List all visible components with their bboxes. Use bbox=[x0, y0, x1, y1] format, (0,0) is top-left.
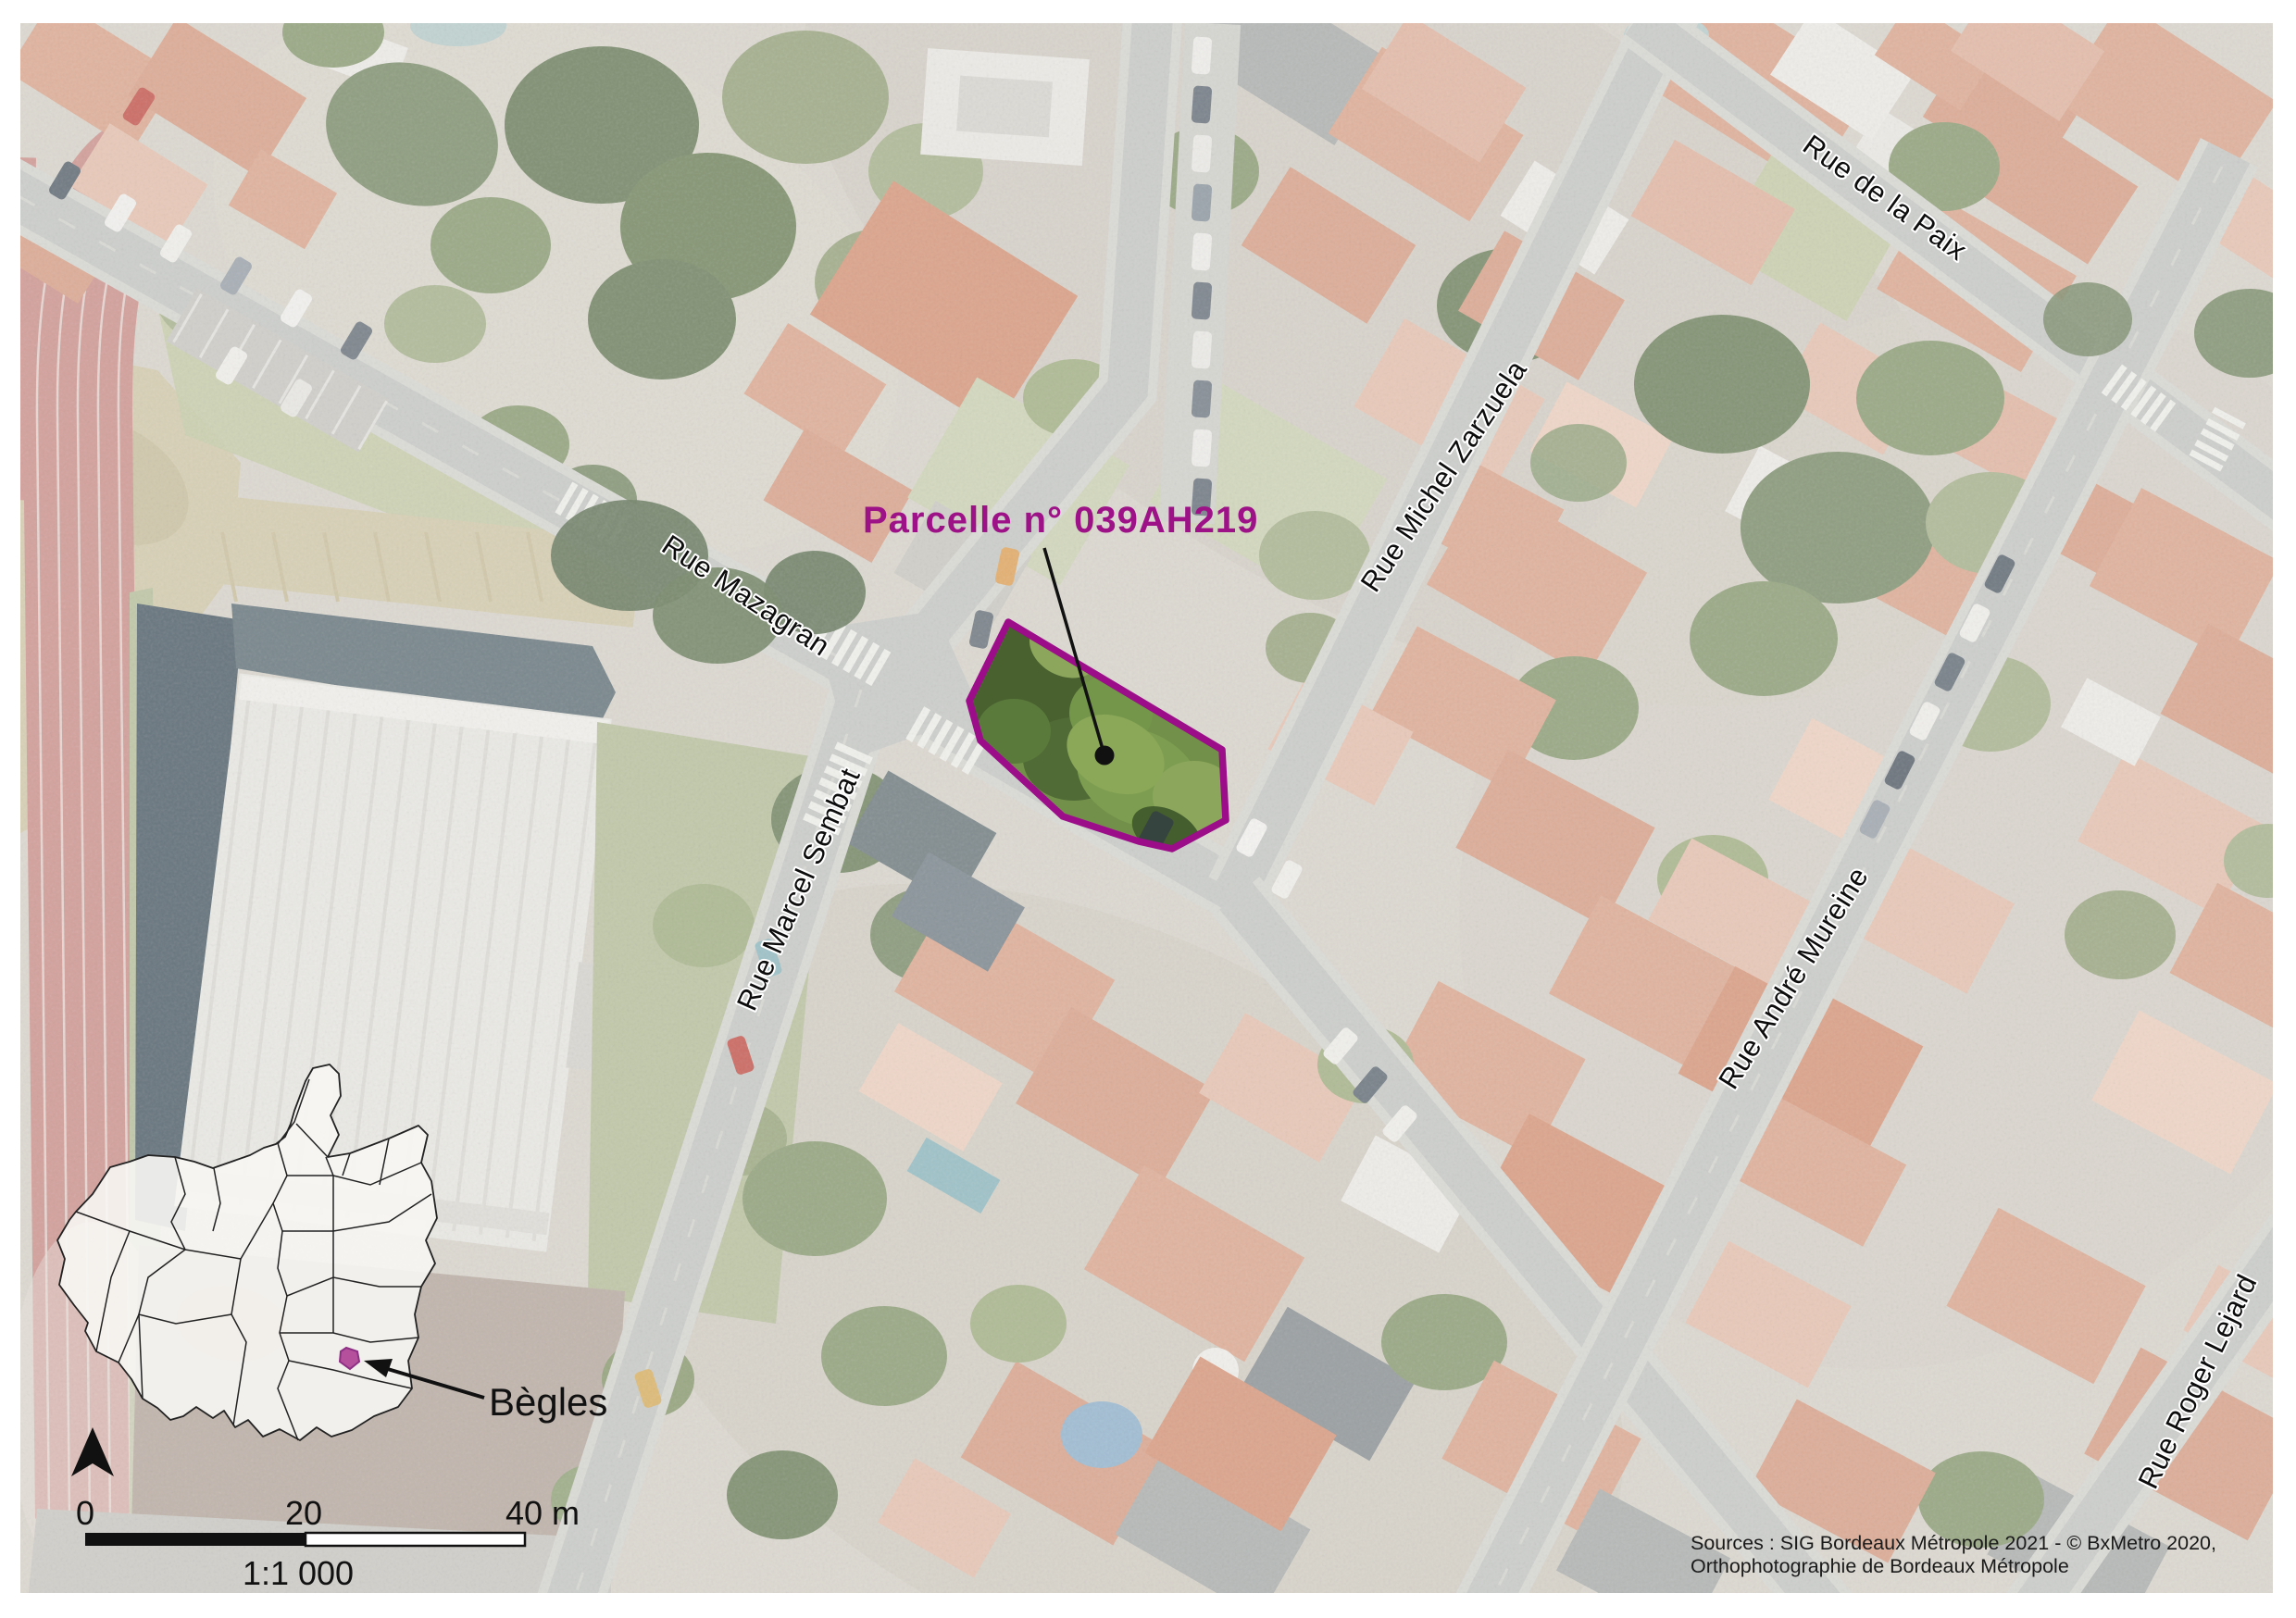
svg-text:Orthophotographie de Bordeaux: Orthophotographie de Bordeaux Métropole bbox=[1691, 1555, 2069, 1577]
svg-text:1:1 000: 1:1 000 bbox=[243, 1554, 354, 1592]
svg-text:m: m bbox=[552, 1494, 580, 1532]
svg-text:Sources : SIG Bordeaux Métropo: Sources : SIG Bordeaux Métropole 2021 - … bbox=[1691, 1532, 2216, 1554]
svg-text:20: 20 bbox=[285, 1494, 322, 1532]
svg-text:Parcelle n° 039AH219: Parcelle n° 039AH219 bbox=[863, 500, 1258, 541]
svg-text:40: 40 bbox=[505, 1494, 543, 1532]
svg-text:Bègles: Bègles bbox=[489, 1380, 607, 1424]
svg-text:0: 0 bbox=[76, 1494, 94, 1532]
